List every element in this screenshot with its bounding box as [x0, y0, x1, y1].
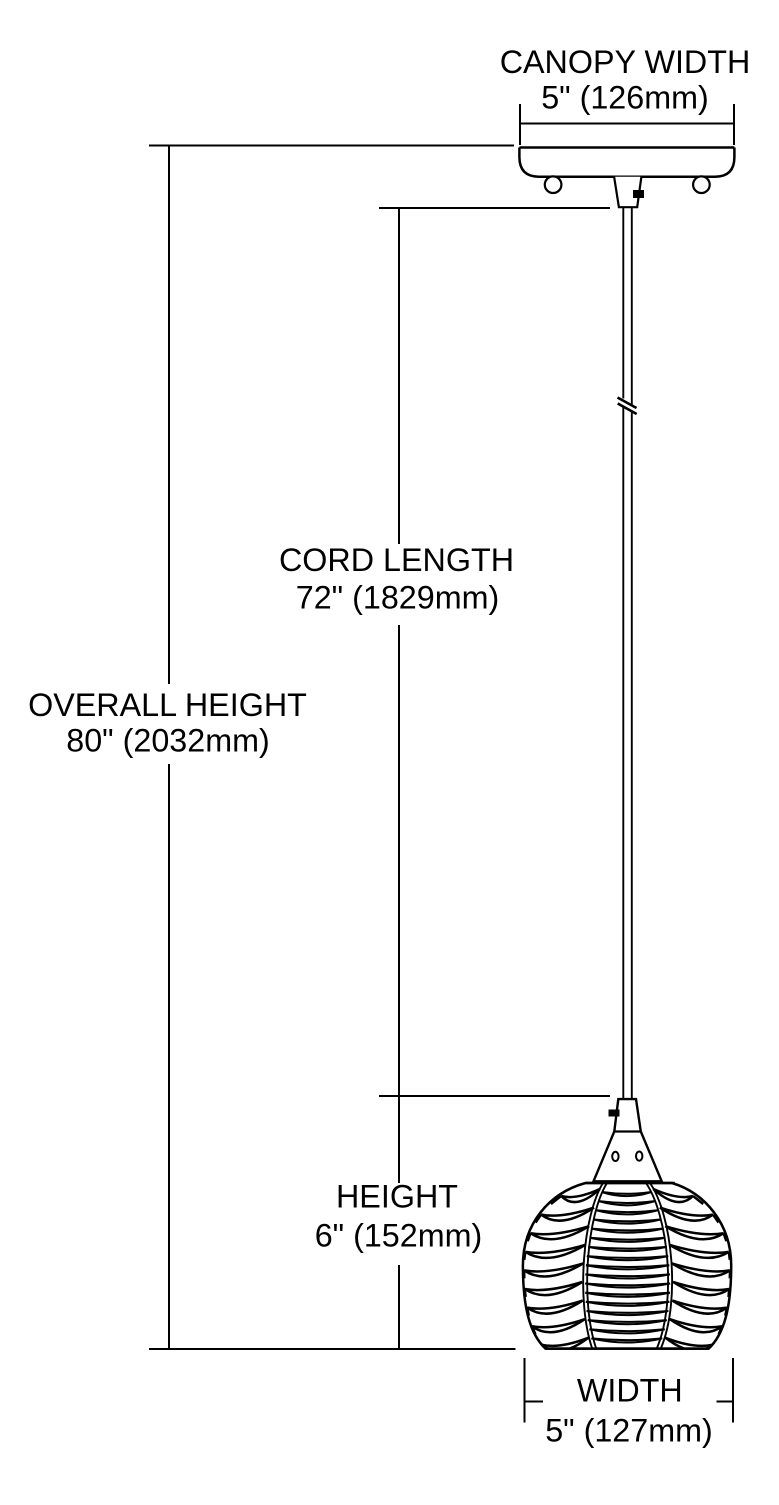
- svg-text:CANOPY WIDTH: CANOPY WIDTH: [500, 44, 751, 80]
- svg-text:5" (127mm): 5" (127mm): [545, 1413, 713, 1449]
- svg-text:OVERALL HEIGHT: OVERALL HEIGHT: [28, 687, 307, 723]
- svg-text:WIDTH: WIDTH: [577, 1373, 683, 1409]
- svg-text:6" (152mm): 6" (152mm): [315, 1218, 483, 1254]
- svg-text:HEIGHT: HEIGHT: [336, 1179, 458, 1215]
- svg-text:80" (2032mm): 80" (2032mm): [66, 723, 270, 759]
- svg-text:72" (1829mm): 72" (1829mm): [296, 580, 500, 616]
- svg-text:5" (126mm): 5" (126mm): [541, 80, 709, 116]
- svg-text:CORD LENGTH: CORD LENGTH: [279, 542, 514, 578]
